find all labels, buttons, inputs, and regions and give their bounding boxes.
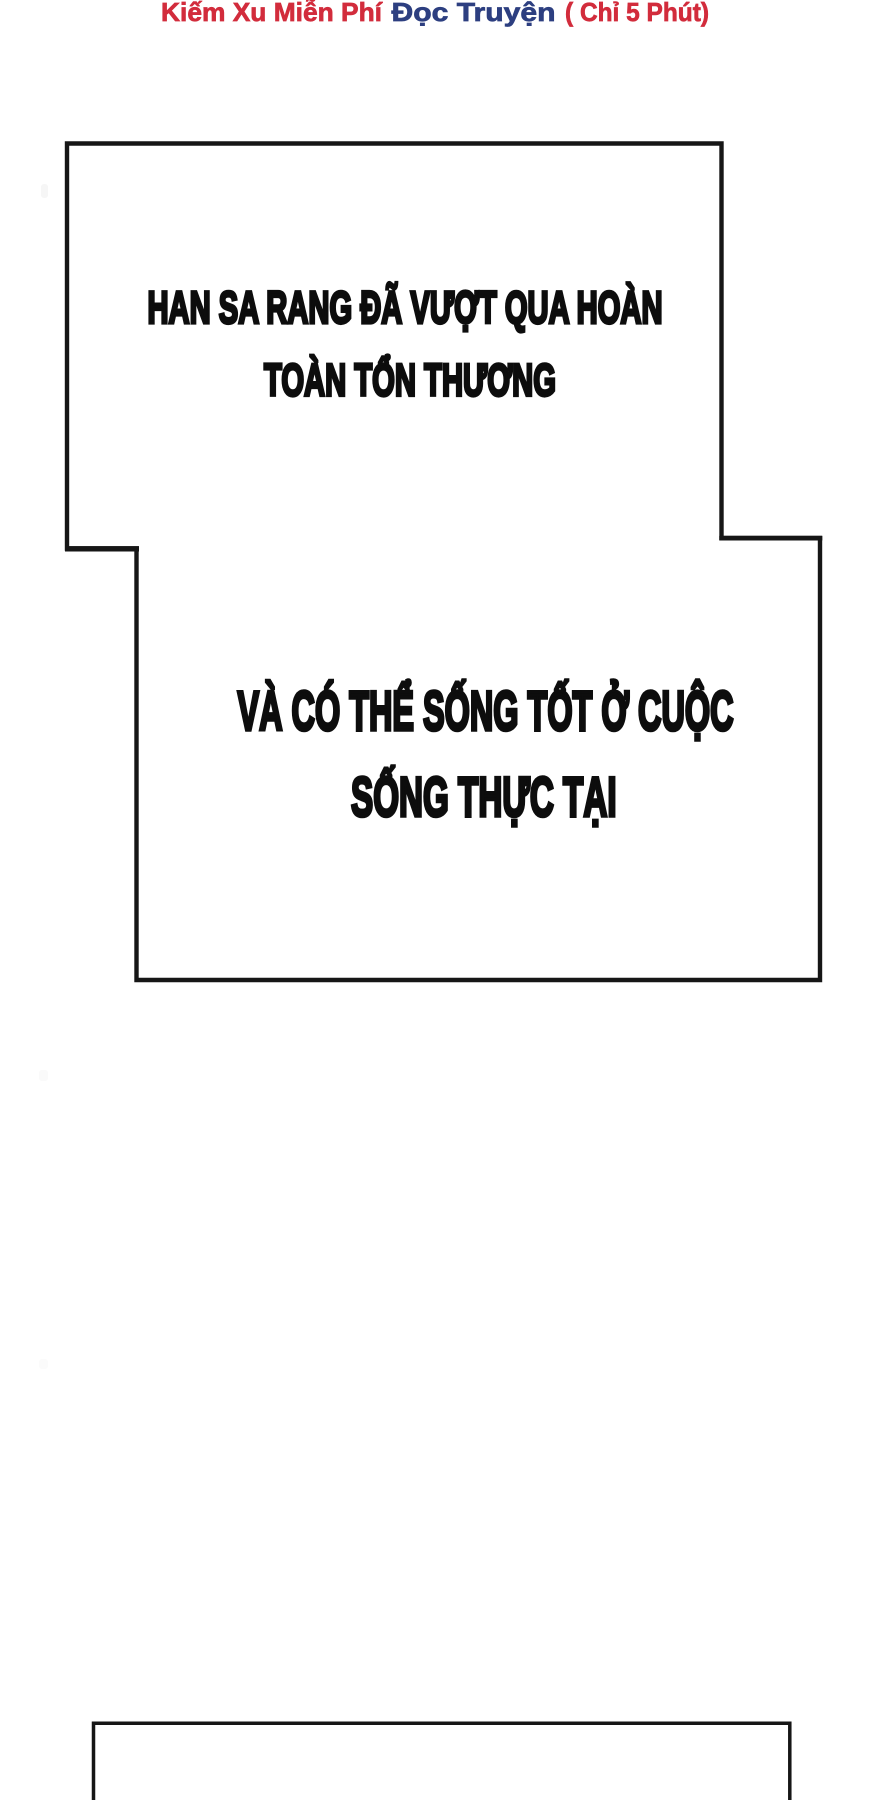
svg-text:SỐNG THỰC TẠI: SỐNG THỰC TẠI [351, 765, 617, 828]
svg-text:TOÀN TỔN THƯƠNG: TOÀN TỔN THƯƠNG [264, 355, 556, 406]
svg-text:Kiếm Xu Miễn Phí: Kiếm Xu Miễn Phí [161, 0, 383, 27]
svg-text:HAN SA RANG ĐÃ VƯỢT QUA HOÀN: HAN SA RANG ĐÃ VƯỢT QUA HOÀN [148, 282, 663, 333]
svg-text:VÀ CÓ THỂ SỐNG TỐT Ở CUỘC: VÀ CÓ THỂ SỐNG TỐT Ở CUỘC [238, 679, 734, 742]
svg-text:( Chỉ 5 Phút): ( Chỉ 5 Phút) [565, 0, 709, 27]
svg-text:Đọc Truyện: Đọc Truyện [392, 0, 556, 27]
